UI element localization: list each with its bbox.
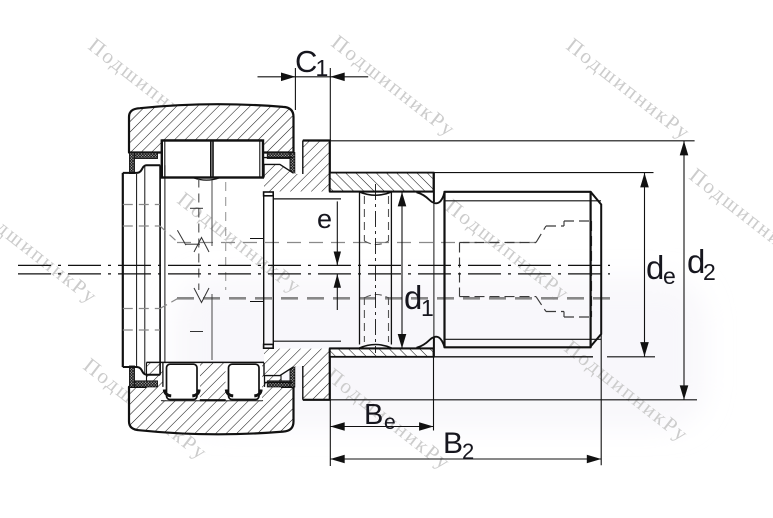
svg-text:e: e <box>317 204 332 234</box>
svg-text:d: d <box>646 249 664 286</box>
svg-text:2: 2 <box>703 259 716 285</box>
svg-text:1: 1 <box>316 55 329 81</box>
svg-text:C: C <box>295 44 317 79</box>
svg-text:d: d <box>404 279 422 316</box>
svg-text:B: B <box>364 399 383 431</box>
svg-text:2: 2 <box>462 439 474 464</box>
svg-text:1: 1 <box>421 295 434 321</box>
svg-text:ПодшипникРу: ПодшипникРу <box>562 33 696 145</box>
svg-text:ПодшипникРу: ПодшипникРу <box>327 30 461 142</box>
svg-text:e: e <box>384 411 396 434</box>
svg-text:B: B <box>443 427 463 460</box>
svg-text:ПодшипникРу: ПодшипникРу <box>0 197 103 309</box>
svg-text:e: e <box>663 263 676 289</box>
